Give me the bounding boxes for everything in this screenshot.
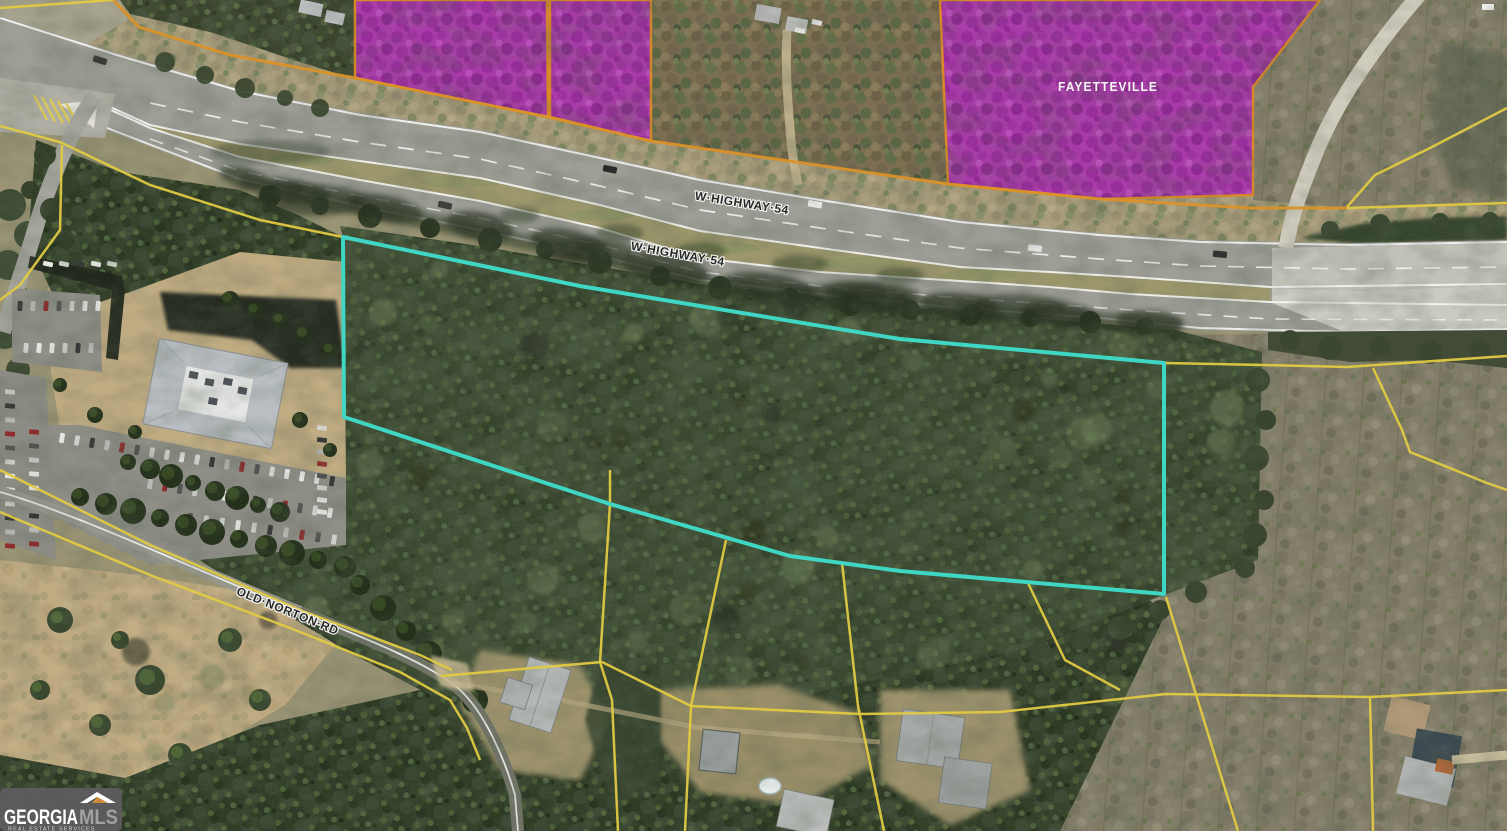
svg-text:REAL ESTATE SERVICES: REAL ESTATE SERVICES bbox=[8, 827, 96, 831]
